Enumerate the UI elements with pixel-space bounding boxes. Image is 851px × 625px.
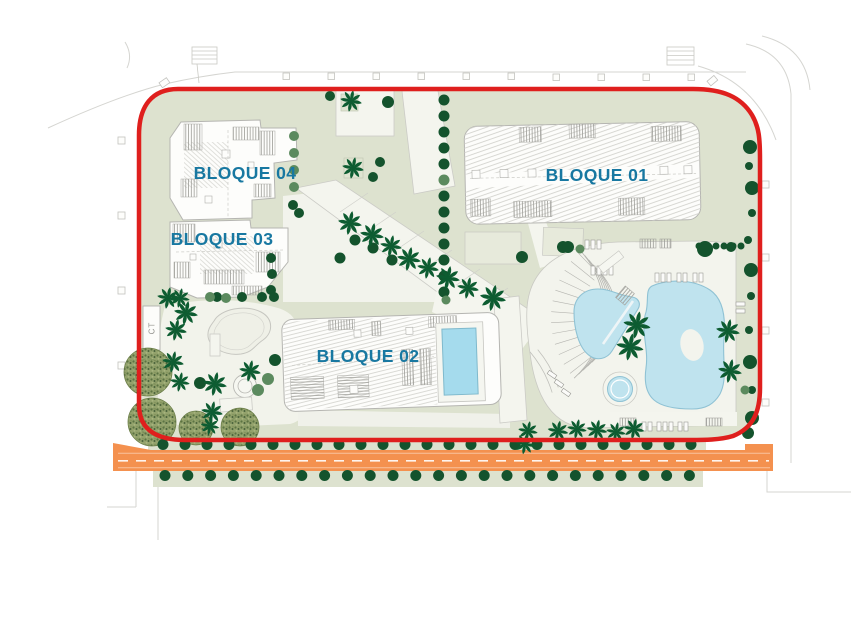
label-bloque-02: BLOQUE 02	[317, 346, 420, 366]
palm-center	[446, 276, 449, 279]
palm-center	[524, 443, 527, 446]
tree-olive-icon	[741, 386, 750, 395]
tree-icon	[237, 292, 247, 302]
tree-icon	[747, 292, 755, 300]
tree-olive-icon	[439, 175, 450, 186]
pergola	[660, 239, 671, 248]
rooftop-pool	[436, 322, 486, 403]
palm-center	[390, 245, 393, 248]
tree-icon	[516, 251, 528, 263]
tree-icon	[748, 209, 756, 217]
tree-icon	[479, 470, 490, 481]
label-bloque-01: BLOQUE 01	[546, 165, 649, 185]
sun-lounger	[669, 422, 673, 431]
palm-center	[628, 345, 632, 349]
tree-icon	[319, 470, 330, 481]
tree-icon	[266, 253, 276, 263]
kids-pool	[603, 372, 637, 406]
tree-icon	[433, 470, 444, 481]
palm-center	[172, 361, 175, 364]
palm-center	[167, 297, 170, 300]
sun-lounger	[657, 422, 661, 431]
tree-icon	[713, 243, 720, 250]
tree-icon	[697, 241, 713, 257]
tree-olive-icon	[221, 293, 231, 303]
tree-icon	[439, 287, 450, 298]
palm-center	[352, 167, 355, 170]
sun-lounger	[663, 422, 667, 431]
palm-center	[427, 267, 430, 270]
tree-icon	[439, 95, 450, 106]
palm-center	[615, 431, 618, 434]
tree-icon	[547, 470, 558, 481]
tree-icon	[744, 236, 752, 244]
sun-lounger	[678, 422, 682, 431]
tree-icon	[439, 239, 450, 250]
tree-icon	[350, 235, 361, 246]
sun-lounger	[648, 422, 652, 431]
ct-label: CT	[148, 322, 157, 335]
palm-center	[407, 257, 410, 260]
tree-icon	[375, 157, 385, 167]
tree-icon	[288, 200, 298, 210]
tree-olive-icon	[289, 131, 299, 141]
tree-olive-icon	[289, 182, 299, 192]
label-bloque-04: BLOQUE 04	[194, 163, 297, 183]
bench-planter	[210, 334, 220, 356]
site-plan-page: CT	[0, 0, 851, 625]
tree-icon	[745, 181, 759, 195]
palm-center	[728, 369, 731, 372]
tree-icon	[325, 91, 335, 101]
tree-icon	[368, 172, 378, 182]
tree-olive-icon	[252, 384, 264, 396]
sun-lounger	[693, 273, 697, 282]
tree-icon	[274, 470, 285, 481]
sun-lounger	[736, 302, 745, 306]
palm-center	[633, 428, 636, 431]
tree-icon	[296, 470, 307, 481]
palm-center	[179, 297, 182, 300]
tree-olive-icon	[576, 245, 585, 254]
tree-icon	[726, 242, 736, 252]
label-bloque-03: BLOQUE 03	[171, 229, 274, 249]
tree-icon	[439, 191, 450, 202]
tree-icon	[524, 470, 535, 481]
tree-icon	[365, 470, 376, 481]
tree-olive-icon	[205, 292, 215, 302]
tree-icon	[439, 159, 450, 170]
sun-lounger	[585, 240, 589, 249]
palm-center	[370, 233, 373, 236]
tree-icon	[456, 470, 467, 481]
tree-icon	[439, 207, 450, 218]
tree-icon	[439, 127, 450, 138]
tree-icon	[743, 355, 757, 369]
pergola	[706, 418, 722, 426]
tree-icon	[267, 269, 277, 279]
garden-bed	[465, 232, 521, 264]
tree-olive-icon	[442, 296, 451, 305]
palm-center	[467, 287, 470, 290]
palm-center	[596, 429, 599, 432]
tree-icon	[388, 470, 399, 481]
tree-icon	[158, 439, 169, 450]
palm-center	[211, 411, 214, 414]
tree-icon	[439, 255, 450, 266]
tree-icon	[228, 470, 239, 481]
tree-olive-icon	[262, 373, 274, 385]
sun-lounger	[597, 240, 601, 249]
sun-lounger	[699, 273, 703, 282]
pergola	[640, 239, 656, 248]
tree-icon	[593, 470, 604, 481]
palm-center	[179, 381, 182, 384]
sun-lounger	[736, 309, 745, 313]
tree-icon	[743, 140, 757, 154]
tree-icon	[410, 470, 421, 481]
palm-center	[213, 382, 216, 385]
tree-icon	[382, 96, 394, 108]
tree-icon	[342, 470, 353, 481]
sun-lounger	[684, 422, 688, 431]
tree-icon	[335, 253, 346, 264]
palm-center	[557, 430, 560, 433]
tree-icon	[269, 354, 281, 366]
tree-icon	[684, 470, 695, 481]
tree-icon	[439, 223, 450, 234]
palm-center	[491, 296, 495, 300]
ct-cabin: CT	[143, 306, 160, 350]
tree-icon	[257, 292, 267, 302]
tree-icon	[502, 470, 513, 481]
tree-icon	[269, 292, 279, 302]
tree-icon	[745, 326, 753, 334]
sun-lounger	[591, 266, 595, 275]
tree-icon	[562, 241, 574, 253]
tree-icon	[439, 143, 450, 154]
tree-icon	[745, 162, 753, 170]
palm-center	[726, 329, 729, 332]
site-plan: CT	[0, 0, 851, 625]
sun-lounger	[591, 240, 595, 249]
palm-center	[350, 100, 353, 103]
tree-icon	[570, 470, 581, 481]
tree-icon	[638, 470, 649, 481]
palm-center	[348, 221, 351, 224]
palm-center	[209, 425, 212, 428]
stairs-structure-top-right	[667, 47, 694, 65]
tree-icon	[387, 255, 398, 266]
sun-lounger	[661, 273, 665, 282]
tree-icon	[182, 470, 193, 481]
palm-center	[184, 311, 187, 314]
palm-center	[635, 323, 639, 327]
sun-lounger	[683, 273, 687, 282]
tree-icon	[616, 470, 627, 481]
tree-icon	[251, 470, 262, 481]
tree-icon	[661, 470, 672, 481]
tree-canopy-icon	[124, 348, 172, 396]
tree-icon	[738, 243, 745, 250]
tree-icon	[294, 208, 304, 218]
palm-center	[249, 370, 252, 373]
palm-center	[527, 430, 530, 433]
palm-center	[576, 428, 579, 431]
tree-icon	[744, 263, 758, 277]
tree-icon	[205, 470, 216, 481]
sun-lounger	[667, 273, 671, 282]
tree-olive-icon	[289, 148, 299, 158]
tree-icon	[160, 470, 171, 481]
tree-icon	[194, 377, 206, 389]
sun-lounger	[655, 273, 659, 282]
sun-lounger	[677, 273, 681, 282]
tree-icon	[439, 111, 450, 122]
palm-center	[175, 329, 178, 332]
